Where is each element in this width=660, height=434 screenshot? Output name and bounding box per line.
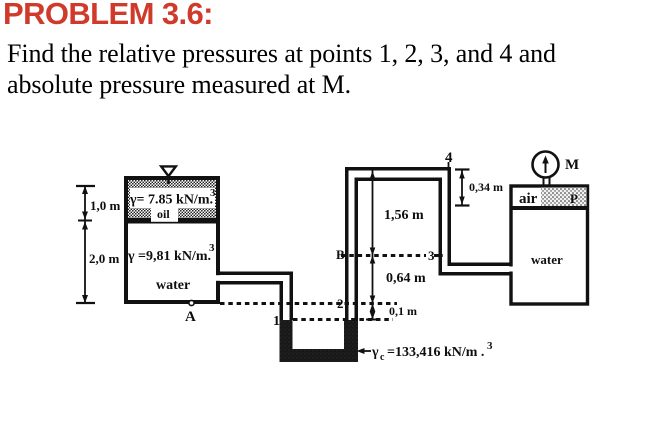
svg-text:3: 3: [209, 242, 215, 254]
svg-text:3: 3: [428, 248, 435, 263]
svg-text:γ =9,81 kN/m.: γ =9,81 kN/m.: [127, 249, 211, 264]
svg-text:2,0 m: 2,0 m: [89, 251, 120, 266]
svg-text:air: air: [519, 191, 538, 207]
svg-text:M: M: [565, 157, 579, 173]
svg-text:0,64 m: 0,64 m: [386, 271, 426, 286]
svg-text:3: 3: [487, 340, 493, 352]
svg-text:3: 3: [210, 187, 216, 199]
svg-text:1: 1: [273, 314, 280, 329]
svg-text:2: 2: [337, 296, 344, 311]
svg-text:water: water: [531, 252, 563, 267]
svg-text:A: A: [185, 309, 196, 325]
svg-text:1,56 m: 1,56 m: [384, 208, 424, 223]
svg-text:γ: γ: [371, 345, 379, 360]
svg-text:=133,416 kN/m .: =133,416 kN/m .: [387, 345, 484, 360]
svg-text:γ= 7.85 kN/m.: γ= 7.85 kN/m.: [129, 193, 213, 208]
svg-text:0,1 m: 0,1 m: [389, 304, 417, 318]
svg-text:1,0 m: 1,0 m: [90, 198, 121, 213]
svg-text:c: c: [380, 352, 385, 363]
svg-text:water: water: [156, 278, 190, 293]
svg-text:oil: oil: [157, 207, 170, 221]
svg-text:B: B: [336, 247, 345, 262]
svg-text:P: P: [570, 191, 578, 206]
svg-text:0,34 m: 0,34 m: [469, 180, 503, 194]
